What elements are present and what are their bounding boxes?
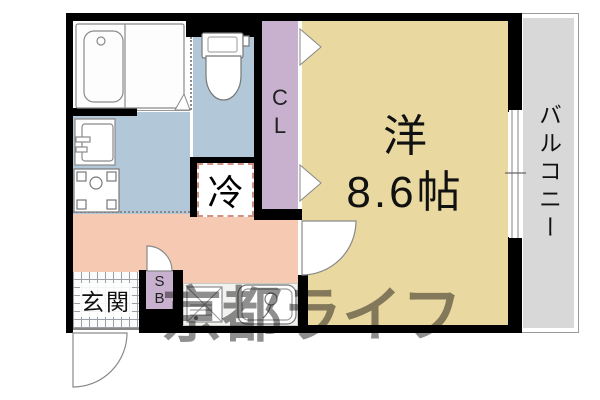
hall-door-arc-icon <box>147 246 172 271</box>
kitchen-sink-icon <box>238 285 296 324</box>
main-room-type-label: 洋 <box>302 100 508 164</box>
washing-machine-pan-icon <box>74 169 119 212</box>
entrance-label-text: 玄関 <box>80 283 132 317</box>
floor-plan: バルコニー 冷 S B <box>0 0 600 400</box>
main-room-size-label: 8.6帖 <box>302 156 508 220</box>
closet-label-l: L <box>272 112 288 140</box>
fixture-layer <box>0 0 600 400</box>
gas-stove-icon <box>187 287 222 322</box>
entrance-door-arc-icon <box>73 333 127 387</box>
washbasin-icon <box>75 119 115 165</box>
sliding-window-icon <box>505 110 526 238</box>
closet-label-c: C <box>272 84 288 112</box>
bathtub-icon <box>76 24 184 108</box>
closet-label: C L <box>262 84 298 139</box>
room-door-arc-icon <box>302 221 356 275</box>
toilet-icon <box>202 33 249 100</box>
entrance-label: 玄関 <box>73 272 139 328</box>
bathroom-door-icon <box>175 94 190 110</box>
